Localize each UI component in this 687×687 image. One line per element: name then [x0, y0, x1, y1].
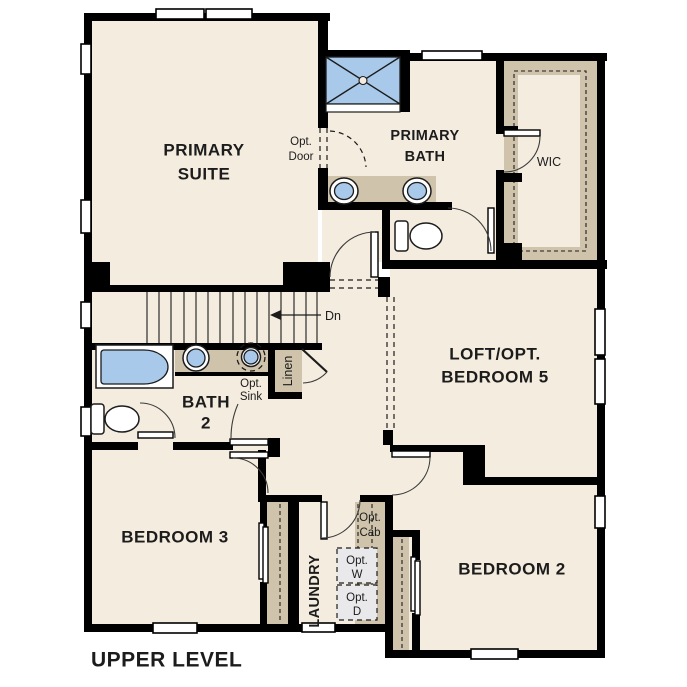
shower-curb [326, 104, 400, 112]
wall-segment [382, 260, 607, 269]
sliding-door-panel [263, 527, 268, 583]
room-label-loft: LOFT/OPT. [449, 345, 540, 364]
wall-segment [173, 442, 233, 450]
wall-segment [385, 495, 393, 632]
bath2-sink [183, 345, 209, 371]
wall-segment [299, 495, 322, 502]
wall-segment [496, 173, 522, 182]
window [81, 407, 91, 436]
toilet-bowl [105, 406, 139, 432]
annotation-opt-dryer: Opt. [346, 592, 368, 604]
bathtub [96, 345, 173, 388]
room-label-primary-suite: SUITE [178, 165, 231, 184]
wall-segment [496, 61, 504, 133]
sink-basin [408, 183, 427, 200]
window [595, 309, 605, 355]
room-label-bath2: 2 [201, 414, 211, 433]
wall-segment [268, 345, 275, 398]
door-leaf [230, 452, 268, 458]
wall-segment [88, 262, 110, 292]
sliding-door-panel [415, 561, 420, 615]
wall-segment [463, 445, 485, 485]
wall-segment [382, 210, 390, 262]
room-label-bedroom3: BEDROOM 3 [121, 528, 228, 547]
window [156, 9, 204, 19]
window [81, 200, 91, 233]
wall-segment [390, 530, 412, 537]
floor-plan: PRIMARY SUITE Opt. Door PRIMARY BATH WIC… [0, 0, 687, 687]
window [153, 623, 197, 633]
wall-segment [175, 372, 270, 376]
door-leaf [392, 451, 430, 457]
annotation-stairs-down: Dn [325, 309, 341, 323]
shower-drain [359, 77, 367, 85]
annotation-opt-cab: Cab [359, 527, 380, 539]
shower [326, 57, 400, 112]
room-label-primary-bath: BATH [405, 149, 446, 165]
room-label-wic: WIC [537, 155, 561, 169]
toilet [395, 221, 442, 251]
toilet-tank [91, 404, 104, 434]
floor-opt-door-gap [316, 126, 332, 170]
window [422, 51, 482, 60]
wall-segment [485, 477, 605, 485]
annotation-opt-sink: Opt. [240, 378, 262, 390]
wall-segment [412, 613, 420, 653]
door-leaf [230, 439, 268, 445]
window [81, 302, 91, 328]
sliding-door [411, 557, 420, 615]
wall-segment [268, 392, 302, 399]
door-leaf [504, 130, 540, 136]
wall-segment [412, 530, 420, 560]
sink-basin [187, 349, 205, 367]
annotation-opt-washer: Opt. [346, 555, 368, 567]
annotation-opt-sink: Sink [240, 391, 263, 403]
sink-basin [335, 183, 354, 200]
wall-segment [400, 50, 410, 112]
toilet [91, 404, 139, 434]
wall-segment [84, 442, 138, 450]
window [471, 649, 518, 659]
window [81, 44, 91, 74]
door-leaf [321, 502, 327, 539]
wall-segment [283, 262, 330, 292]
plan-title: UPPER LEVEL [91, 649, 242, 672]
wall-segment [318, 50, 410, 57]
annotation-opt-washer: W [352, 569, 363, 581]
toilet-tank [395, 221, 408, 251]
room-label-bath2: BATH [182, 393, 230, 412]
window [595, 359, 605, 404]
room-label-linen: Linen [281, 356, 295, 387]
window [206, 9, 252, 19]
door-leaf [138, 432, 173, 438]
wall-segment [288, 495, 299, 632]
vanity-sink [330, 178, 358, 204]
room-label-bedroom2: BEDROOM 2 [458, 560, 565, 579]
annotation-opt-door: Door [289, 151, 314, 163]
room-label-primary-bath: PRIMARY [390, 128, 459, 144]
wall-segment [378, 277, 390, 297]
annotation-opt-door: Opt. [290, 136, 312, 148]
door-leaf [371, 232, 378, 277]
wall-segment [383, 430, 393, 445]
annotation-opt-dryer: D [353, 606, 361, 618]
annotation-opt-cab: Opt. [359, 512, 381, 524]
room-label-primary-suite: PRIMARY [163, 141, 244, 160]
floor-plan-canvas: PRIMARY SUITE Opt. Door PRIMARY BATH WIC… [0, 0, 687, 687]
sliding-door [259, 523, 268, 583]
toilet-bowl [410, 223, 442, 249]
room-label-laundry: LAUNDRY [307, 554, 323, 627]
window [595, 496, 605, 528]
floor-bedroom2 [390, 445, 603, 653]
room-label-loft: BEDROOM 5 [441, 368, 548, 387]
sink-basin [244, 350, 258, 364]
bathtub-basin [101, 350, 168, 384]
vanity-sink [403, 178, 431, 204]
wall-segment [268, 438, 280, 457]
